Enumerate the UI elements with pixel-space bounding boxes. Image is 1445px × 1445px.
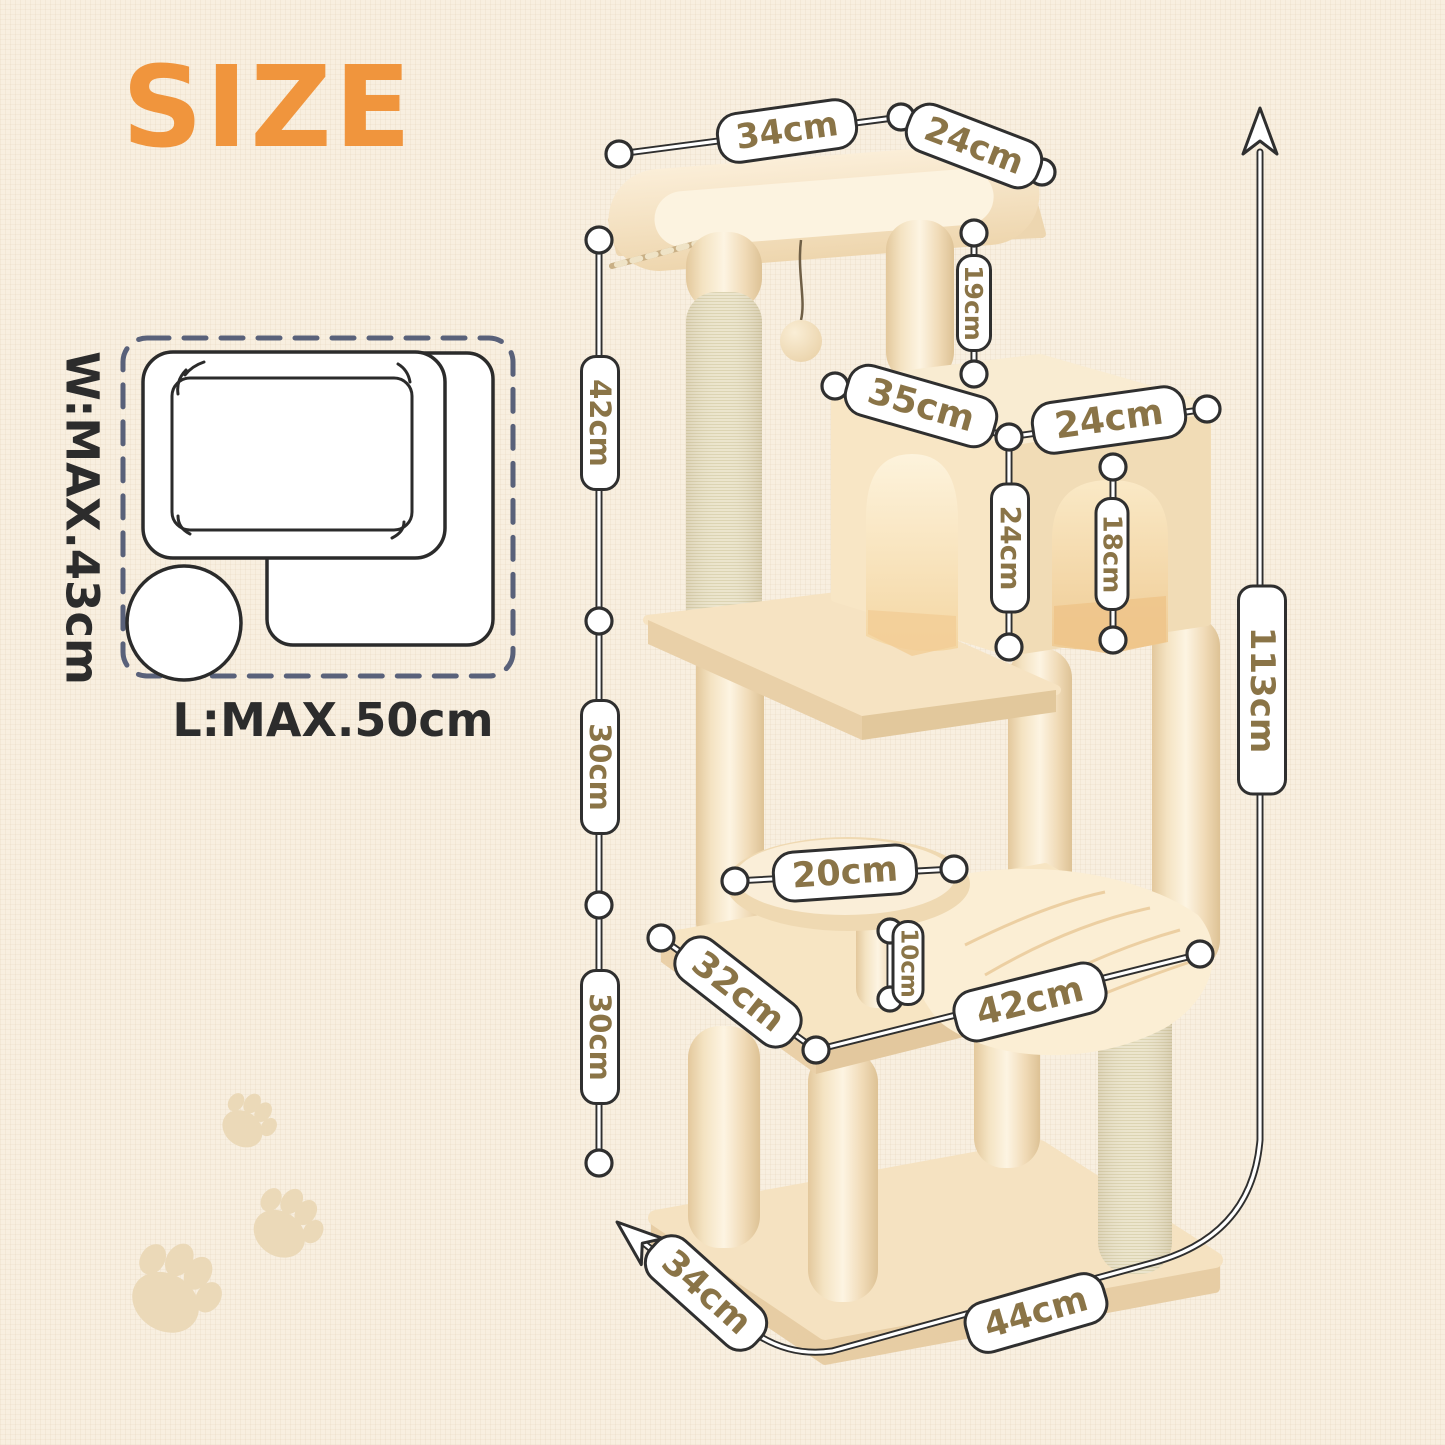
paw-print-icon — [210, 1083, 287, 1159]
dim-pill-stool-diameter: 20cm — [770, 842, 919, 904]
dim-pill-section-middle: 30cm — [580, 699, 620, 835]
dim-pill-section-bottom: 30cm — [580, 969, 620, 1105]
dim-pill-stool-post: 10cm — [892, 920, 925, 1006]
page-title: SIZE — [122, 52, 414, 164]
dim-pill-section-top: 42cm — [580, 355, 620, 491]
paw-print-icon — [112, 1226, 237, 1350]
dim-pill-total-height: 113cm — [1237, 585, 1287, 796]
bed-length-label: L:MAX.50cm — [172, 693, 493, 747]
bed-size-inset — [123, 338, 513, 680]
paw-print-icon — [237, 1175, 335, 1273]
dim-pill-top-to-condo: 19cm — [956, 254, 992, 352]
bed-width-label: W:MAX.43cm — [56, 351, 109, 685]
size-infographic: SIZE W:MAX.43cm L:MAX.50cm 34cm 24cm 19c… — [0, 0, 1445, 1445]
dim-pill-condo-door: 18cm — [1095, 497, 1130, 611]
paw-prints — [112, 1083, 336, 1351]
cat-tree-illustration — [605, 139, 1220, 1360]
dim-pill-condo-height: 24cm — [990, 483, 1030, 614]
height-arrow-icon — [1243, 108, 1277, 154]
bed-cushion-outline — [172, 378, 412, 530]
bed-ball-outline — [127, 566, 241, 680]
